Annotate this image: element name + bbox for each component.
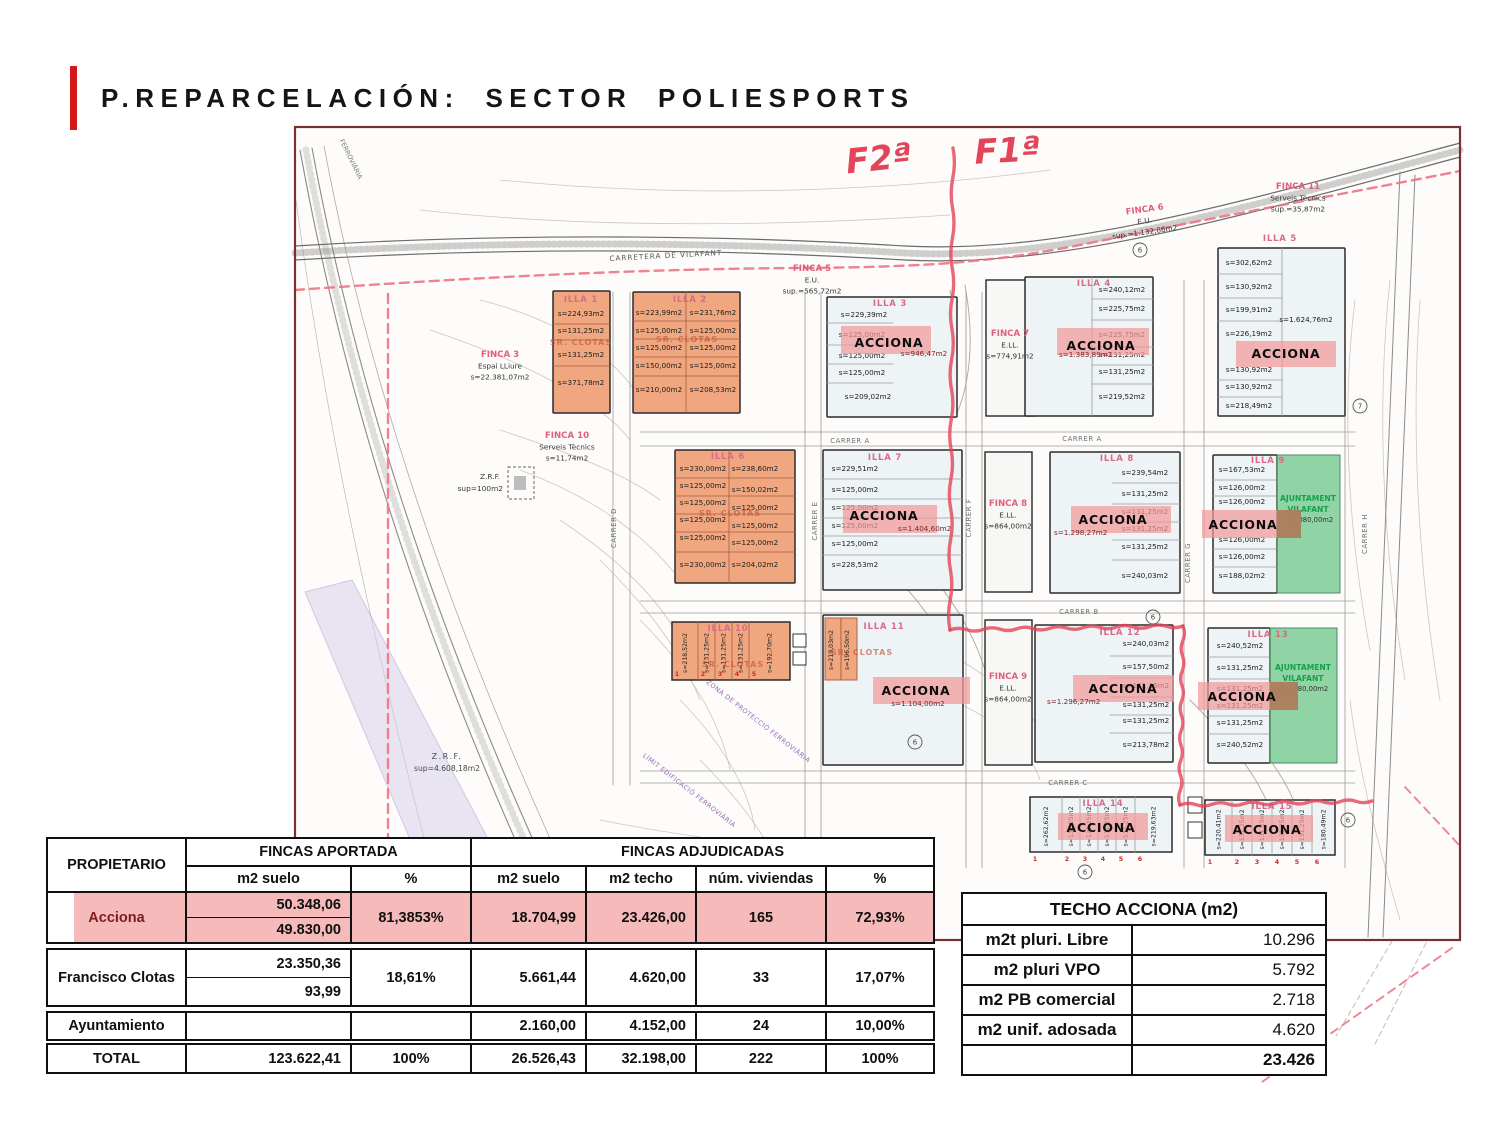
group-header-fincas-aportada: FINCAS APORTADA xyxy=(185,839,470,865)
header-pct-adjudicada: % xyxy=(825,865,933,891)
parcel-area-label: s=230,00m2 xyxy=(680,464,727,473)
techo-row-value: 5.792 xyxy=(1131,954,1325,984)
utility-structure xyxy=(793,652,806,665)
parcel-area-label: s=131,25m2 xyxy=(558,326,605,335)
finca-subtype: E.LL. xyxy=(999,511,1016,520)
illa-title: ILLA 9 xyxy=(1251,456,1285,466)
parcel-number: 3 xyxy=(1255,859,1259,866)
techo-row-label: m2t pluri. Libre xyxy=(963,924,1131,954)
clotas-label: SR. CLOTAS xyxy=(831,648,893,657)
techo-table-title: TECHO ACCIONA (m2) xyxy=(963,894,1325,924)
parcel-area-label: s=230,00m2 xyxy=(680,560,727,569)
parcel-number: 3 xyxy=(1083,856,1087,863)
techo-row-label xyxy=(963,1044,1131,1074)
finca-area: s=864,00m2 xyxy=(984,522,1031,531)
handwritten-f2: F2ª xyxy=(844,136,914,183)
parcel-area-label: s=131,25m2 xyxy=(1122,489,1169,498)
acciona-area-label: s=1.404,60m2 xyxy=(898,524,951,533)
parcel-area-label: s=228,53m2 xyxy=(832,560,879,569)
allocation-table: PROPIETARIO FINCAS APORTADA FINCAS ADJUD… xyxy=(46,837,935,1077)
circled-mark-number: 6 xyxy=(1346,817,1351,825)
allocation-table-ayuntamiento-block: Ayuntamiento 2.160,00 4.152,00 24 10,00% xyxy=(46,1011,935,1041)
row-clotas-suelo-adj: 5.661,44 xyxy=(470,950,585,1005)
parcel-number: 2 xyxy=(701,671,705,678)
illa-title: ILLA 3 xyxy=(873,299,907,309)
parcel-area-label: s=125,00m2 xyxy=(832,485,879,494)
finca-area: s=22.381,07m2 xyxy=(471,373,530,382)
parcel-area-label: s=125,00m2 xyxy=(832,539,879,548)
parcel-area-label: s=262,62m2 xyxy=(1043,806,1050,846)
finca-name: FINCA 10 xyxy=(545,431,589,441)
allocation-table-main-block: PROPIETARIO FINCAS APORTADA FINCAS ADJUD… xyxy=(46,837,935,944)
finca-subtype: Espai LLiure xyxy=(478,362,522,371)
row-acciona-suelo-bottom: 49.830,00 xyxy=(187,918,350,942)
parcel-area-label: s=240,52m2 xyxy=(1217,740,1264,749)
clotas-label: SR. CLOTAS xyxy=(656,335,718,344)
header-m2-techo: m2 techo xyxy=(585,865,695,891)
techo-row-value: 10.296 xyxy=(1131,924,1325,954)
parcel-number: 2 xyxy=(1235,859,1239,866)
parcel-area-label: s=125,00m2 xyxy=(732,538,779,547)
row-clotas-suelo-bottom: 93,99 xyxy=(187,978,350,1005)
handwritten-f1: F1ª xyxy=(973,129,1041,172)
street-label: CARRER F xyxy=(965,499,973,538)
street-label: CARRER A xyxy=(830,437,869,445)
circled-mark-number: 6 xyxy=(1083,869,1088,877)
finca-area: s=864,00m2 xyxy=(984,695,1031,704)
parcel-number: 6 xyxy=(1138,856,1143,863)
parcel-area-label: s=131,25m2 xyxy=(1217,718,1264,727)
techo-acciona-table: TECHO ACCIONA (m2) m2t pluri. Libre 10.2… xyxy=(961,892,1327,1076)
row-clotas-viviendas: 33 xyxy=(695,950,825,1005)
parcel-number: 5 xyxy=(1119,856,1123,863)
acciona-label: ACCIONA xyxy=(854,335,923,350)
parcel-area-label: s=180,49m2 xyxy=(1321,809,1328,849)
illa-title: ILLA 4 xyxy=(1077,279,1111,289)
acciona-area-label: s=1.298,27m2 xyxy=(1054,528,1107,537)
illa-title: ILLA 14 xyxy=(1083,799,1124,809)
parcel-number: 4 xyxy=(735,671,740,678)
zrf-small-label: Z.R.F. xyxy=(480,472,500,481)
parcel-area-label: s=240,52m2 xyxy=(1217,641,1264,650)
acciona-area-label: s=1.296,27m2 xyxy=(1047,697,1100,706)
parcel-area-label: s=125,00m2 xyxy=(680,481,727,490)
row-acciona-suelo-adj: 18.704,99 xyxy=(470,891,585,942)
parcel-area-label: s=199,91m2 xyxy=(1226,305,1273,314)
clotas-label: SR. CLOTAS xyxy=(550,338,612,347)
row-total-pct-aportada: 100% xyxy=(350,1045,470,1072)
acciona-label: ACCIONA xyxy=(1078,512,1147,527)
acciona-label: ACCIONA xyxy=(849,508,918,523)
row-total-suelo-adj: 26.526,43 xyxy=(470,1045,585,1072)
clotas-label: SR. CLOTAS xyxy=(702,660,764,669)
street-label: CARRER H xyxy=(1361,514,1369,554)
finca-area: s=774,91m2 xyxy=(986,352,1033,361)
finca-subtype: E.LL. xyxy=(1001,341,1018,350)
parcel-area-label: s=157,50m2 xyxy=(1123,662,1170,671)
row-clotas-techo: 4.620,00 xyxy=(585,950,695,1005)
parcel-area-label: s=131,25m2 xyxy=(1123,716,1170,725)
acciona-label: ACCIONA xyxy=(1207,689,1276,704)
parcel-area-label: s=229,39m2 xyxy=(841,310,888,319)
row-ayunt-suelo-aportado xyxy=(185,1013,350,1039)
street-label: CARRER E xyxy=(811,501,819,540)
zrf-large-label: Z.R.F. xyxy=(432,752,463,761)
parcel-area-label: s=225,75m2 xyxy=(1099,304,1146,313)
illa-title: ILLA 13 xyxy=(1248,630,1289,640)
street-label: CARRER D xyxy=(610,508,618,548)
zrf-small-building xyxy=(514,476,526,490)
parcel-area-label: s=130,92m2 xyxy=(1226,282,1273,291)
finca-subtype: E.LL. xyxy=(999,684,1016,693)
parcel-area-label: s=224,93m2 xyxy=(558,309,605,318)
parcel-area-label: s=302,62m2 xyxy=(1226,258,1273,267)
title-block: P.REPARCELACIÓN: SECTOR POLIESPORTS xyxy=(70,66,914,130)
parcel-area-label: s=238,60m2 xyxy=(732,464,779,473)
allocation-table-clotas-block: Francisco Clotas 23.350,36 93,99 18,61% … xyxy=(46,948,935,1007)
header-num-viviendas: núm. viviendas xyxy=(695,865,825,891)
row-clotas-name: Francisco Clotas xyxy=(48,950,185,1005)
parcel-area-label: s=125,00m2 xyxy=(680,498,727,507)
parcel-area-label: s=126,00m2 xyxy=(1219,497,1266,506)
acciona-label: ACCIONA xyxy=(1066,820,1135,835)
parcel-area-label: s=131,25m2 xyxy=(1217,663,1264,672)
acciona-area-label: s=1.104,00m2 xyxy=(891,699,944,708)
illa-title: ILLA 11 xyxy=(864,622,905,632)
parcel-number: 4 xyxy=(1275,859,1280,866)
header-m2-suelo-adjudicada: m2 suelo xyxy=(470,865,585,891)
title-accent-bar xyxy=(70,66,77,130)
parcel-area-label: s=226,19m2 xyxy=(1226,329,1273,338)
parcel-area-label: s=219,52m2 xyxy=(1099,392,1146,401)
parcel-area-label: s=240,03m2 xyxy=(1122,571,1169,580)
finca-name: FINCA 8 xyxy=(989,499,1027,509)
parcel-area-label: s=131,25m2 xyxy=(1099,367,1146,376)
utility-structure xyxy=(1188,822,1202,838)
finca-name: FINCA 7 xyxy=(991,329,1029,339)
ajuntament-label: AJUNTAMENT xyxy=(1275,663,1332,672)
row-ayunt-name: Ayuntamiento xyxy=(48,1013,185,1039)
illa-title: ILLA 8 xyxy=(1100,454,1134,464)
row-total-name: TOTAL xyxy=(48,1045,185,1072)
illa-title: ILLA 6 xyxy=(711,452,745,462)
parcel-area-label: s=223,99m2 xyxy=(636,308,683,317)
street-label: CARRER A xyxy=(1062,435,1101,443)
utility-structure xyxy=(793,634,806,647)
parcel-area-label: s=125,00m2 xyxy=(636,343,683,352)
parcel-area-label: s=167,53m2 xyxy=(1219,465,1266,474)
finca-name: FINCA 3 xyxy=(481,350,519,360)
parcel-area-label: s=125,00m2 xyxy=(690,361,737,370)
parcel-area-label: s=150,00m2 xyxy=(636,361,683,370)
finca-subtype: Serveis Tècnics xyxy=(539,443,595,452)
parcel-area-label: s=219,63m2 xyxy=(1151,806,1158,846)
parcel-area-label: s=371,78m2 xyxy=(558,378,605,387)
ajuntament-label: VILAFANT xyxy=(1282,674,1324,683)
parcel-area-label: s=231,76m2 xyxy=(690,308,737,317)
parcel-area-label: s=130,92m2 xyxy=(1226,382,1273,391)
parcel-number: 1 xyxy=(1208,859,1212,866)
row-total-viviendas: 222 xyxy=(695,1045,825,1072)
row-acciona-pct-adj: 72,93% xyxy=(825,891,933,942)
header-pct-aportada: % xyxy=(350,865,470,891)
circled-mark-number: 6 xyxy=(1138,247,1143,255)
finca-area: s=11,74m2 xyxy=(546,454,589,463)
row-ayunt-suelo-adj: 2.160,00 xyxy=(470,1013,585,1039)
acciona-area-label: s=1.383,89m2 xyxy=(1059,350,1112,359)
zrf-small-area: sup=100m2 xyxy=(458,484,503,493)
parcel-area-label: s=125,00m2 xyxy=(690,343,737,352)
parcel-area-label: s=126,00m2 xyxy=(1219,483,1266,492)
street-label: CARRER G xyxy=(1184,543,1192,583)
circled-mark-number: 7 xyxy=(1358,403,1362,411)
parcel-area-label: s=208,53m2 xyxy=(690,385,737,394)
row-total-pct-adj: 100% xyxy=(825,1045,933,1072)
illa-title: ILLA 5 xyxy=(1263,234,1297,244)
row-acciona-suelo-top: 50.348,06 xyxy=(187,893,350,918)
row-acciona-viviendas: 165 xyxy=(695,891,825,942)
illa-title: ILLA 7 xyxy=(868,453,902,463)
parcel-number: 5 xyxy=(752,671,756,678)
illa-title: ILLA 1 xyxy=(564,295,598,305)
acciona-label: ACCIONA xyxy=(1251,346,1320,361)
slide: FERROVIÀRIAZONA DE PROTECCIÓ FERROVIÀRIA… xyxy=(0,0,1500,1125)
parcel-number: 3 xyxy=(718,671,722,678)
parcel-number: 5 xyxy=(1295,859,1299,866)
finca-area: sup.=565,72m2 xyxy=(783,287,842,296)
parcel-number: 2 xyxy=(1065,856,1069,863)
finca-subtype: E.U. xyxy=(805,276,820,285)
acciona-label: ACCIONA xyxy=(881,683,950,698)
circled-mark-number: 6 xyxy=(1151,614,1156,622)
finca-block xyxy=(985,620,1032,765)
techo-row-value: 2.718 xyxy=(1131,984,1325,1014)
parcel-number: 6 xyxy=(1315,859,1320,866)
techo-row-label: m2 unif. adosada xyxy=(963,1014,1131,1044)
allocation-table-total-block: TOTAL 123.622,41 100% 26.526,43 32.198,0… xyxy=(46,1043,935,1074)
zrf-large-area: sup=4.608,18m2 xyxy=(414,764,480,773)
header-m2-suelo-aportada: m2 suelo xyxy=(185,865,350,891)
header-propietario: PROPIETARIO xyxy=(48,839,185,891)
parcel-area-label: s=125,00m2 xyxy=(690,326,737,335)
parcel-area-label: s=229,51m2 xyxy=(832,464,879,473)
parcel-number: 1 xyxy=(675,671,679,678)
finca-subtype: Serveis Tècnics xyxy=(1270,194,1326,203)
parcel-area-label: s=218,49m2 xyxy=(1226,401,1273,410)
circled-mark-number: 6 xyxy=(913,739,918,747)
row-ayunt-pct-aportada xyxy=(350,1013,470,1039)
row-total-suelo-aportado: 123.622,41 xyxy=(185,1045,350,1072)
acciona-area-label: s=1.624,76m2 xyxy=(1279,315,1332,324)
row-ayunt-techo: 4.152,00 xyxy=(585,1013,695,1039)
parcel-area-label: s=125,00m2 xyxy=(839,368,886,377)
parcel-area-label: s=125,00m2 xyxy=(680,533,727,542)
row-acciona-suelo-aportado: 50.348,06 49.830,00 xyxy=(185,891,350,942)
parcel-area-label: s=210,00m2 xyxy=(636,385,683,394)
acciona-label: ACCIONA xyxy=(1208,517,1277,532)
acciona-label: ACCIONA xyxy=(1232,822,1301,837)
survey-line xyxy=(1336,941,1392,1036)
parcel-area-label: s=150,02m2 xyxy=(732,485,779,494)
row-clotas-suelo-top: 23.350,36 xyxy=(187,950,350,978)
techo-row-label: m2 PB comercial xyxy=(963,984,1131,1014)
parcel-area-label: s=240,03m2 xyxy=(1123,639,1170,648)
finca-name: FINCA 5 xyxy=(793,264,831,274)
parcel-area-label: s=239,54m2 xyxy=(1122,468,1169,477)
illa-title: ILLA 2 xyxy=(673,295,707,305)
row-clotas-pct-adj: 17,07% xyxy=(825,950,933,1005)
ajuntament-label: AJUNTAMENT xyxy=(1280,494,1337,503)
parcel-area-label: s=213,78m2 xyxy=(1123,740,1170,749)
parcel-number: 1 xyxy=(1033,856,1037,863)
row-clotas-suelo-aportado: 23.350,36 93,99 xyxy=(185,950,350,1005)
row-acciona-techo: 23.426,00 xyxy=(585,891,695,942)
finca-name: FINCA 11 xyxy=(1276,182,1320,192)
row-ayunt-pct-adj: 10,00% xyxy=(825,1013,933,1039)
acciona-area-label: s=946,47m2 xyxy=(901,349,948,358)
row-acciona-name: Acciona xyxy=(48,891,185,942)
finca-name: FINCA 9 xyxy=(989,672,1027,682)
row-total-techo: 32.198,00 xyxy=(585,1045,695,1072)
parcel-area-label: s=220,41m2 xyxy=(1216,809,1223,849)
row-ayunt-viviendas: 24 xyxy=(695,1013,825,1039)
parcel-number: 4 xyxy=(1101,856,1106,863)
parcel-area-label: s=204,02m2 xyxy=(732,560,779,569)
row-acciona-pct-aportada: 81,3853% xyxy=(350,891,470,942)
techo-row-label: m2 pluri VPO xyxy=(963,954,1131,984)
parcel-area-label: s=188,02m2 xyxy=(1219,571,1266,580)
street-label: CARRER C xyxy=(1048,779,1088,787)
parcel-area-label: s=126,00m2 xyxy=(1219,552,1266,561)
parcel-area-label: s=125,00m2 xyxy=(636,326,683,335)
acciona-label: ACCIONA xyxy=(1088,681,1157,696)
clotas-label: SR. CLOTAS xyxy=(699,509,761,518)
group-header-fincas-adjudicadas: FINCAS ADJUDICADAS xyxy=(470,839,933,865)
parcel-area-label: s=131,25m2 xyxy=(1122,542,1169,551)
acciona-highlight-overlap xyxy=(1277,510,1301,538)
finca-area: sup.=35,87m2 xyxy=(1271,205,1325,214)
page-title: P.REPARCELACIÓN: SECTOR POLIESPORTS xyxy=(101,83,914,130)
illa-title: ILLA 10 xyxy=(708,624,749,634)
row-clotas-pct-aportada: 18,61% xyxy=(350,950,470,1005)
parcel-area-label: s=192,70m2 xyxy=(767,633,774,673)
techo-total-value: 23.426 xyxy=(1131,1044,1325,1074)
parcel-area-label: s=131,25m2 xyxy=(558,350,605,359)
parcel-area-label: s=125,00m2 xyxy=(732,521,779,530)
street-label: CARRER B xyxy=(1059,608,1098,616)
parcel-area-label: s=209,02m2 xyxy=(845,392,892,401)
parcel-area-label: s=218,52m2 xyxy=(682,633,689,673)
techo-row-value: 4.620 xyxy=(1131,1014,1325,1044)
